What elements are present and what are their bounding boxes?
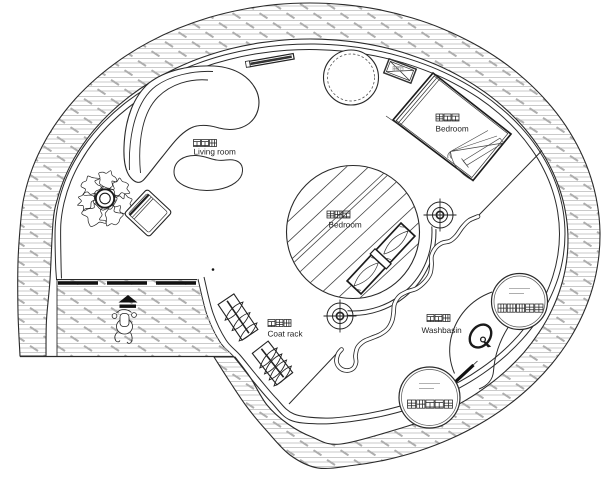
svg-text:Bedroom: Bedroom	[329, 221, 362, 230]
svg-text:Bedroom: Bedroom	[436, 125, 469, 134]
svg-text:Living room: Living room	[194, 148, 237, 157]
svg-text:Washbasin: Washbasin	[422, 326, 463, 335]
svg-text:Coat rack: Coat rack	[268, 330, 304, 339]
